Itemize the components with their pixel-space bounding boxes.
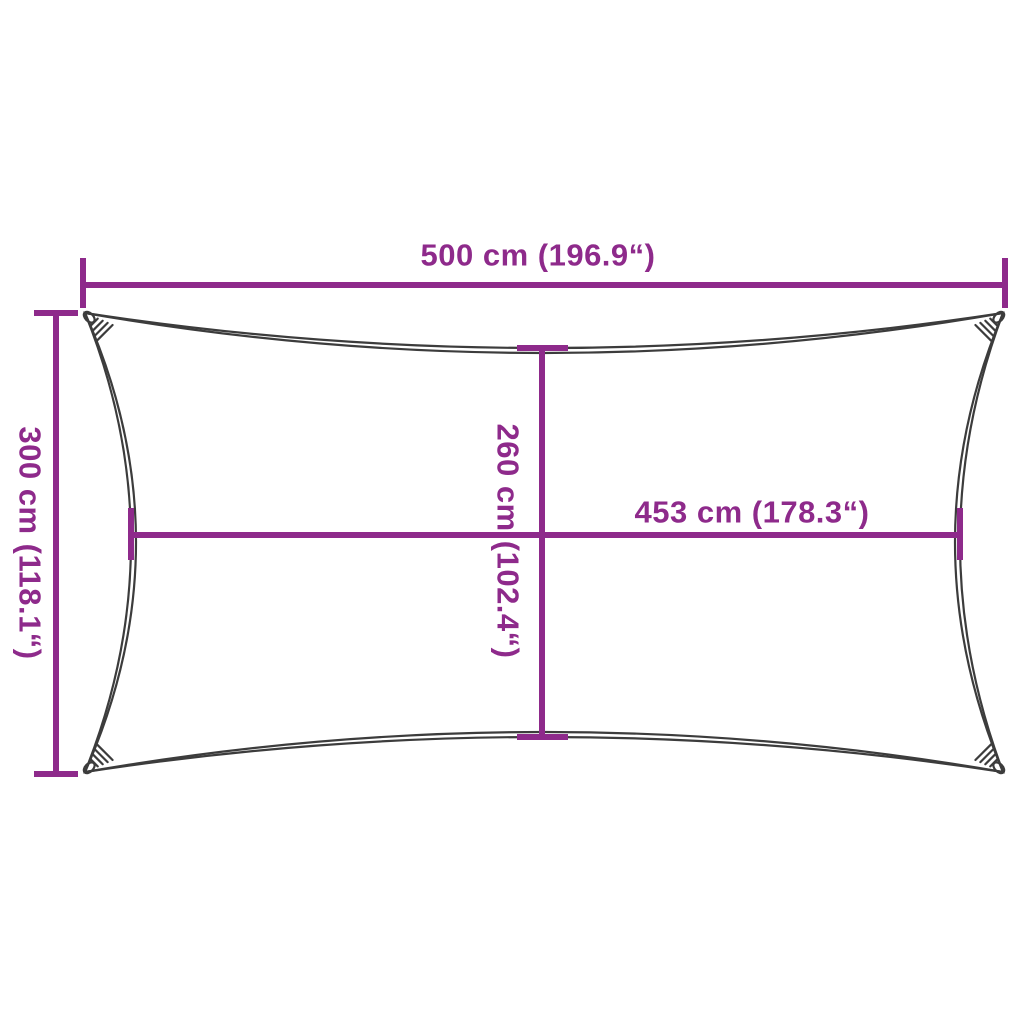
width-top-label: 500 cm (196.9“) [421, 240, 656, 271]
corner-loops-bottom-left [77, 744, 113, 780]
dimension-diagram: 500 cm (196.9“) 300 cm (118.1“) 260 cm (… [0, 0, 1024, 1024]
corner-loops-top-right [975, 305, 1011, 341]
corner-loops-bottom-right [975, 744, 1011, 780]
corner-loops-top-left [77, 305, 113, 341]
width-center-label: 453 cm (178.3“) [635, 497, 870, 528]
height-left-label: 300 cm (118.1“) [15, 426, 46, 659]
height-center-label: 260 cm (102.4“) [493, 424, 524, 659]
